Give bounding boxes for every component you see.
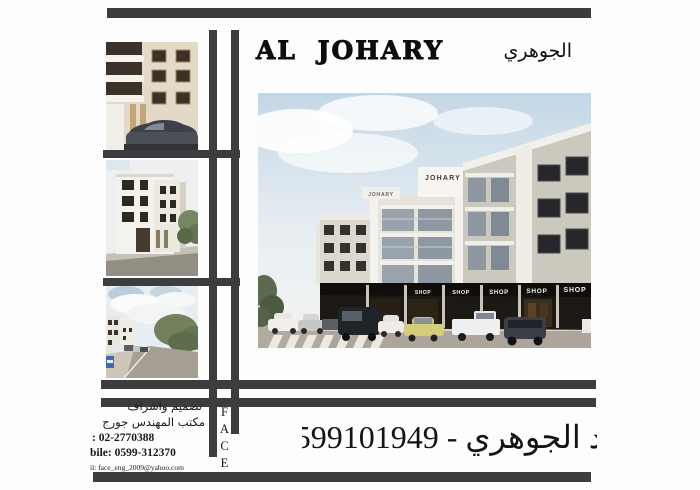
shop-sign-label: SHOP xyxy=(452,290,470,296)
design-supervision-line: تصميم واشراف xyxy=(128,399,202,413)
building-sign-primary: JOHARY xyxy=(425,175,461,182)
mobile-line: bile: 0599-312370 xyxy=(90,447,176,459)
footer-frame-bar xyxy=(93,472,591,482)
thumbnail-divider-2 xyxy=(103,278,240,286)
poster-canvas: AL JOHARY الجوهري xyxy=(0,0,700,490)
building-sign-secondary: JOHARY xyxy=(368,192,393,198)
thumbnail-building-corner-image xyxy=(106,160,198,276)
thumbnail-facade-closeup-image xyxy=(106,42,198,150)
thumbnail-building-corner xyxy=(106,160,198,276)
shop-sign-label: SHOP xyxy=(415,290,431,296)
shop-sign-label: SHOP xyxy=(563,287,586,294)
thumbnail-divider-1 xyxy=(103,150,240,158)
thumbnail-street-view-image xyxy=(106,286,198,378)
tel-line: : 02-2770388 xyxy=(92,432,154,444)
main-building-render-image: JOHARY JOHARY xyxy=(258,93,591,348)
email-line: il: face_eng_2009@yahoo.com xyxy=(90,463,184,472)
vertical-frame-bar-right xyxy=(231,30,239,434)
bottom-frame-bar-upper xyxy=(101,380,596,389)
face-letter: E xyxy=(218,455,231,472)
top-frame-bar xyxy=(107,8,591,18)
face-letter: C xyxy=(218,438,231,455)
thumbnail-facade-closeup xyxy=(106,42,198,150)
face-vertical-letters: F A C E xyxy=(218,404,231,472)
brand-title-en: AL JOHARY xyxy=(256,36,444,65)
shop-sign-label: SHOP xyxy=(526,288,547,295)
shop-sign-label: SHOP xyxy=(489,290,508,296)
brand-title-ar: الجوهري xyxy=(498,40,572,62)
main-building-render: JOHARY JOHARY xyxy=(258,93,591,348)
contact-block: تصميم واشراف مكتب المهندس جورج : 02-2770… xyxy=(89,399,206,473)
thumbnail-street-view xyxy=(106,286,198,378)
engineer-office-line: مكتب المهندس جورج xyxy=(102,415,205,429)
face-letter: A xyxy=(218,421,231,438)
vertical-frame-bar-left xyxy=(209,30,217,457)
owner-phone-container: د الجوهري - 0599101949 xyxy=(302,418,597,464)
face-letter: F xyxy=(218,404,231,421)
owner-phone-line: د الجوهري - 0599101949 xyxy=(302,418,597,456)
